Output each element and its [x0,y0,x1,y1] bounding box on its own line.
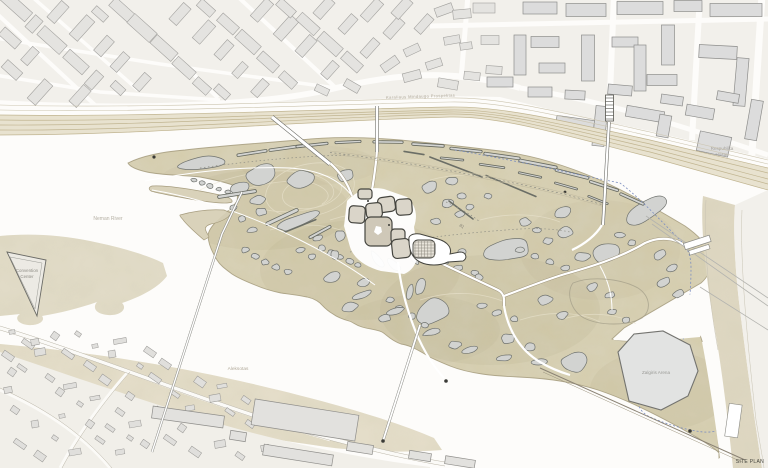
svg-text:SITE PLAN: SITE PLAN [736,459,764,465]
svg-text:Convention: Convention [16,268,39,273]
svg-text:Respublika: Respublika [711,146,734,151]
svg-text:Center: Center [20,274,34,279]
svg-text:Aleksotas: Aleksotas [228,366,249,372]
svg-text:Neman River: Neman River [93,216,123,222]
svg-text:Zalgiris Arena: Zalgiris Arena [642,370,671,375]
